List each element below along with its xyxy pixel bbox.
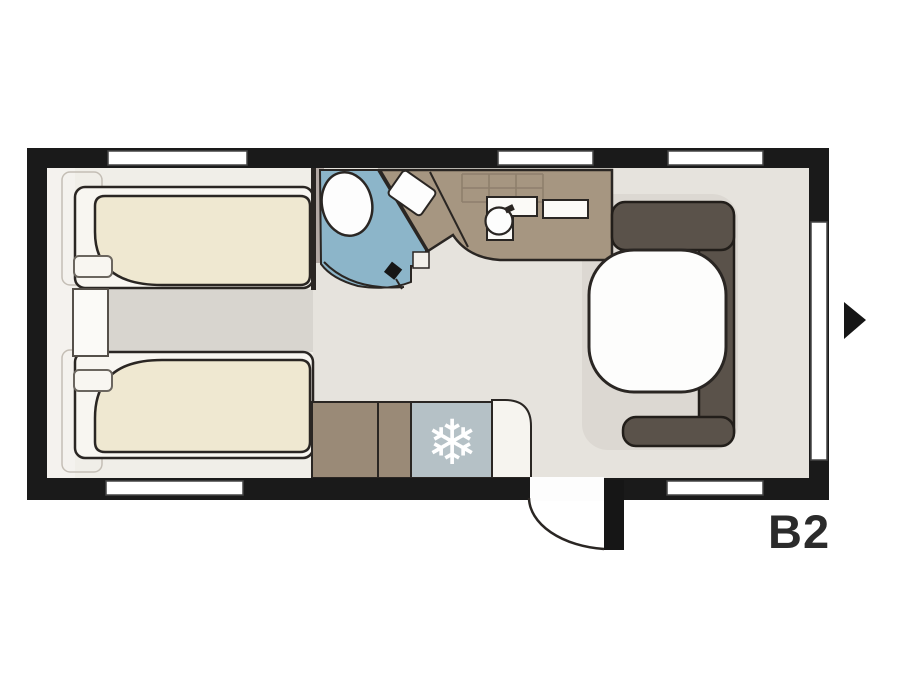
window-top-3 xyxy=(668,151,763,165)
lower-cabinet-2 xyxy=(378,402,411,478)
floorplan-svg: ❄ B2 xyxy=(0,0,906,680)
bedside-cabinet xyxy=(73,289,108,356)
entry-door-leaf xyxy=(604,480,624,550)
entry-door xyxy=(529,477,624,550)
direction-arrow-icon xyxy=(844,302,866,339)
window-top-1 xyxy=(108,151,247,165)
snowflake-icon: ❄ xyxy=(426,406,478,479)
lower-cabinet-1 xyxy=(312,402,378,478)
wardrobe xyxy=(492,400,531,478)
bed-front-step xyxy=(74,256,112,277)
window-bottom-2 xyxy=(667,481,763,495)
partition-wall xyxy=(311,168,316,290)
headboard-strip xyxy=(47,168,75,478)
kitchen-worktop-flap xyxy=(543,200,588,218)
bed-rear-mattress xyxy=(95,360,310,452)
aisle-floor xyxy=(108,289,313,352)
model-label: B2 xyxy=(768,505,830,558)
window-top-2 xyxy=(498,151,593,165)
window-bottom-1 xyxy=(106,481,243,495)
wall-left xyxy=(27,148,47,500)
window-right xyxy=(811,222,827,460)
caravan-floorplan: ❄ B2 xyxy=(0,0,906,680)
lower-units xyxy=(312,400,531,478)
bed-front-mattress xyxy=(95,196,310,285)
dinette-table xyxy=(589,250,726,392)
washroom-notch xyxy=(413,252,429,268)
entry-door-arc xyxy=(529,498,604,549)
entry-door-opening xyxy=(530,477,604,501)
bed-rear-step xyxy=(74,370,112,391)
dinette-bench-top xyxy=(612,202,734,250)
dinette-bench-bottom xyxy=(623,417,734,446)
